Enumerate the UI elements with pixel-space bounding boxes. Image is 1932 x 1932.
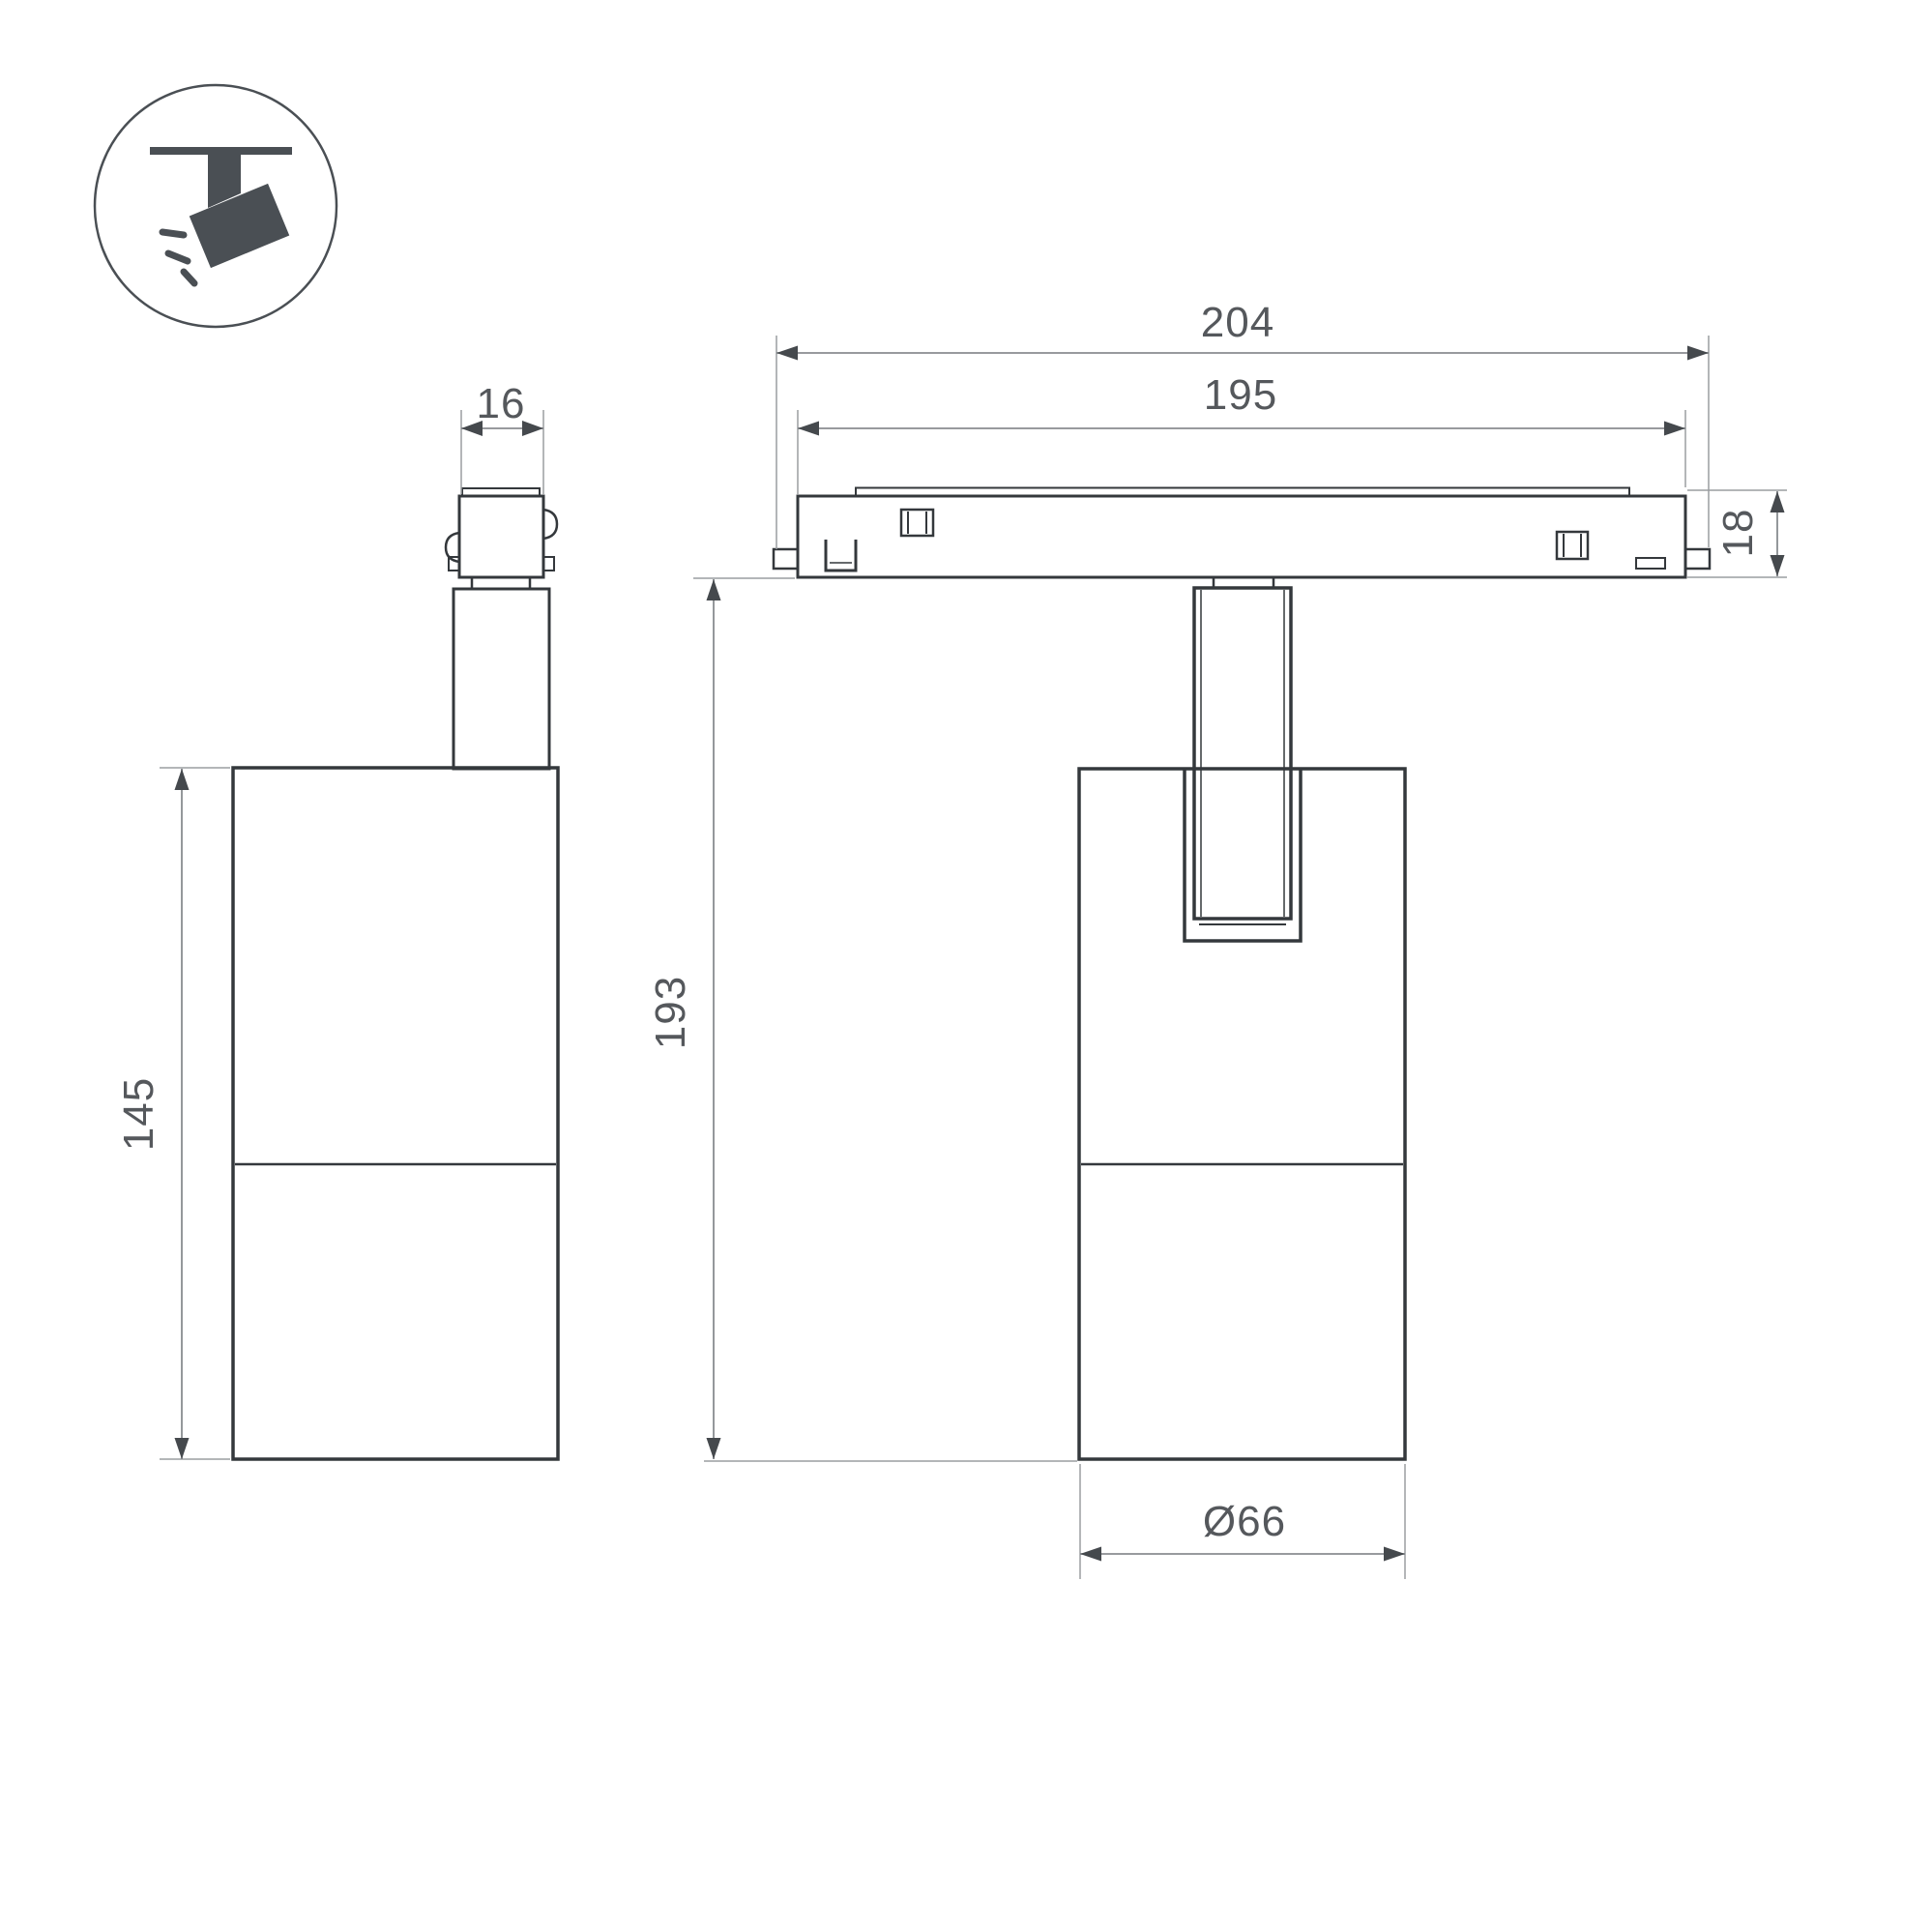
dim-track-overall-length: 204 [776, 299, 1709, 549]
arrow-left [1080, 1547, 1101, 1562]
front-stem [1194, 588, 1291, 919]
front-track-right-tab [1685, 549, 1710, 569]
front-track-left-tab [774, 549, 798, 569]
arrow-top [1771, 491, 1785, 512]
arrow-left [798, 422, 819, 436]
track-spotlight-icon [95, 85, 337, 327]
front-track-clip [826, 540, 856, 571]
dim-label-195: 195 [1204, 371, 1277, 419]
side-lamp-body [233, 768, 558, 1459]
dim-adapter-width: 16 [461, 380, 543, 494]
arrow-bottom [175, 1438, 190, 1459]
front-track-slot [1636, 558, 1665, 569]
icon-light-rays [162, 232, 194, 283]
arrow-left [776, 346, 798, 361]
arrow-right [1384, 1547, 1405, 1562]
dim-label-18: 18 [1714, 509, 1762, 558]
side-adapter-box [459, 496, 543, 577]
arrow-right [1664, 422, 1685, 436]
dim-body-diameter: Ø66 [1080, 1464, 1405, 1579]
dim-label-145: 145 [115, 1077, 162, 1151]
dim-track-height: 18 [1687, 490, 1787, 577]
arrow-top [175, 769, 190, 790]
side-adapter-neck [472, 577, 530, 589]
dim-track-visible-length: 195 [798, 371, 1685, 495]
dim-label-16: 16 [477, 380, 526, 427]
arrow-right [1687, 346, 1709, 361]
front-track-left-window [901, 510, 933, 536]
front-track-right-window [1557, 532, 1588, 559]
side-adapter-right-foot [543, 557, 554, 571]
side-adapter-right-lug [543, 510, 557, 539]
dimension-drawing: 16 145 [0, 0, 1932, 1932]
dim-label-diameter-66: Ø66 [1203, 1498, 1286, 1545]
dim-label-193: 193 [647, 976, 694, 1049]
dim-fixture-height: 193 [647, 578, 1077, 1461]
arrow-bottom [1771, 555, 1785, 576]
side-view: 16 145 [115, 380, 558, 1459]
arrow-bottom [707, 1438, 721, 1459]
front-view: 204 195 18 193 [647, 299, 1787, 1579]
dim-label-204: 204 [1201, 299, 1274, 346]
side-stem [454, 589, 549, 769]
arrow-top [707, 579, 721, 600]
icon-lamp-body [190, 184, 289, 268]
dim-body-height: 145 [115, 768, 230, 1459]
icon-track-bar [150, 147, 292, 155]
drawing-canvas: 16 145 [0, 0, 1932, 1932]
